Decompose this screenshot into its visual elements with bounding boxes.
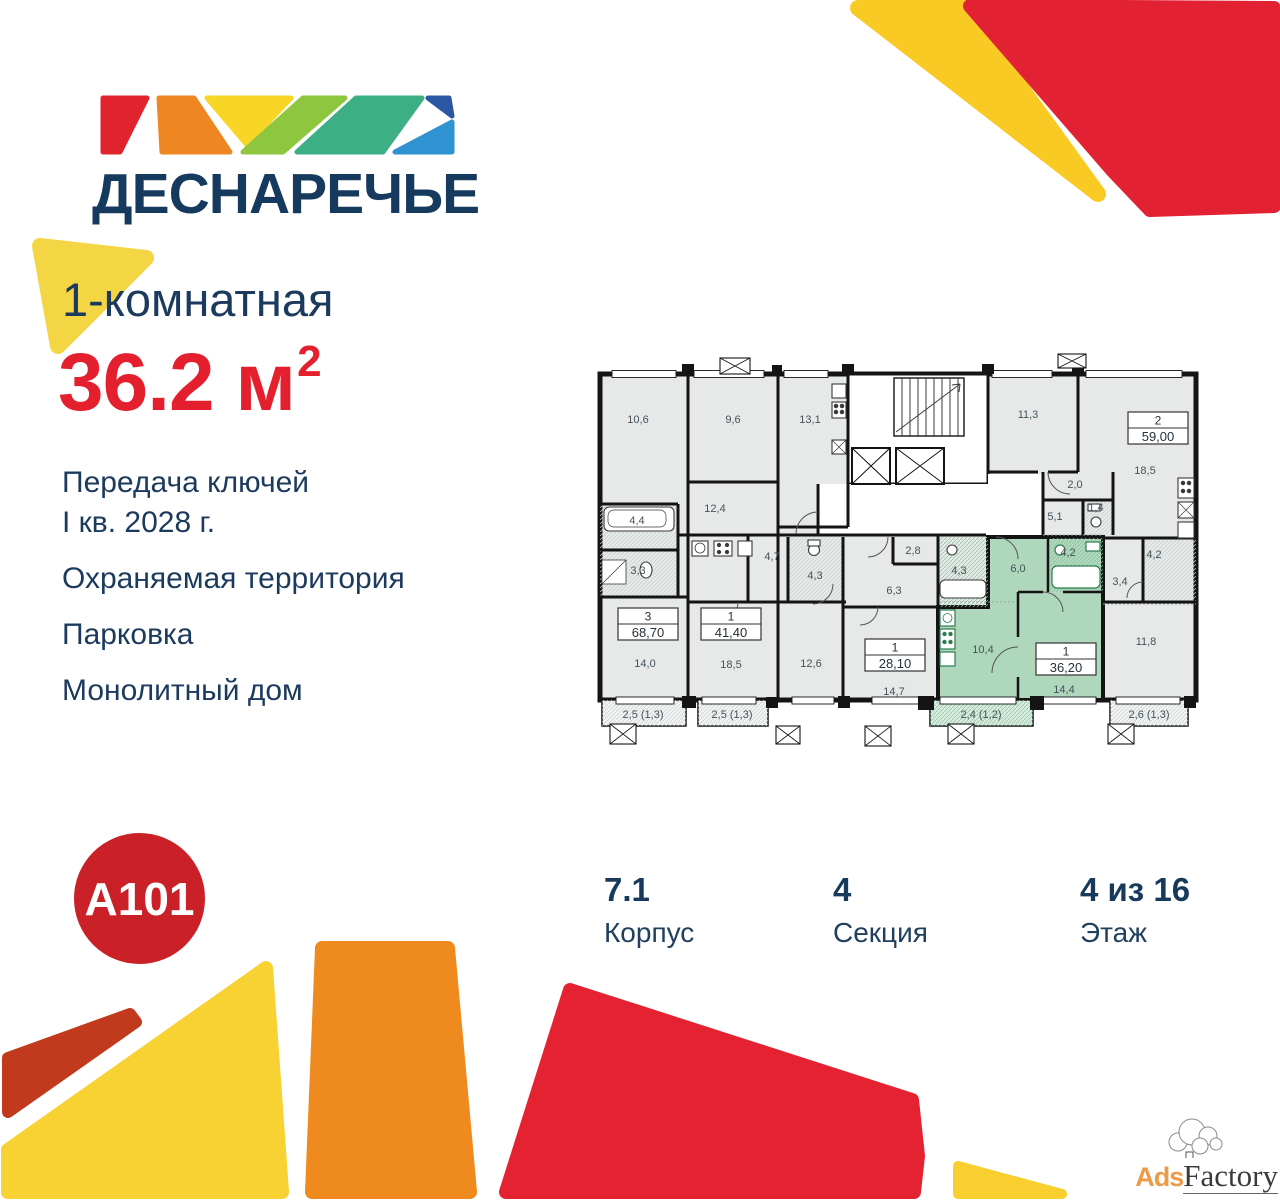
room-area-label: 14,7 bbox=[883, 686, 904, 698]
feature-item: Охраняемая территория bbox=[62, 559, 405, 599]
brand-logo bbox=[95, 95, 457, 157]
room-area-label: 2,5 (1,3) bbox=[712, 709, 753, 721]
smoke-cloud-icon bbox=[1156, 1112, 1226, 1158]
listing-area: 36.2 м2 bbox=[58, 336, 321, 430]
corridor-right bbox=[988, 474, 1043, 535]
feature-item: Монолитный дом bbox=[62, 671, 405, 711]
room-area-label: 12,4 bbox=[704, 503, 725, 515]
apartment-info-box: 128,10 bbox=[865, 639, 925, 671]
room-area-label: 2,4 (1,2) bbox=[961, 709, 1002, 721]
room-area-label: 2,8 bbox=[905, 545, 920, 557]
watermark-factory: Factory bbox=[1183, 1158, 1278, 1194]
room-area-label: 11,8 bbox=[1136, 636, 1157, 648]
room-area-label: 10,4 bbox=[972, 644, 993, 656]
apartment-info-box: 259,00 bbox=[1128, 412, 1188, 444]
room-area-label: 9,6 bbox=[725, 414, 740, 426]
room-area-label: 4,2 bbox=[1146, 549, 1161, 561]
room-area-label: 4,2 bbox=[1060, 547, 1075, 559]
room-area-label: 4,3 bbox=[807, 570, 822, 582]
stat-etazh-value: 4 из 16 bbox=[1080, 871, 1190, 909]
room-area-label: 4,4 bbox=[629, 515, 644, 527]
staircase bbox=[894, 378, 964, 436]
developer-logo-text: А101 bbox=[85, 872, 195, 926]
apartment-rooms-count: 1 bbox=[728, 610, 735, 624]
apartment-total-area: 36,20 bbox=[1050, 660, 1083, 675]
room-area-label: 12,6 bbox=[800, 658, 821, 670]
room-area-label: 18,5 bbox=[720, 659, 741, 671]
room-area-label: 2,5 (1,3) bbox=[623, 709, 664, 721]
area-value: 36.2 bbox=[58, 337, 214, 428]
room-area-label: 6,0 bbox=[1010, 563, 1025, 575]
apartment-rooms-count: 2 bbox=[1155, 414, 1162, 428]
room-area-label: 13,1 bbox=[799, 414, 820, 426]
apartment-total-area: 68,70 bbox=[632, 625, 665, 640]
room-area-label: 14,4 bbox=[1053, 684, 1074, 696]
floor-plan: 10,69,613,111,312,44,43,34,74,32,84,36,3… bbox=[588, 352, 1210, 758]
stat-korpus: 7.1 Корпус bbox=[604, 871, 694, 949]
stat-sekciya-value: 4 bbox=[833, 871, 928, 909]
feature-item: Парковка bbox=[62, 615, 405, 655]
apartment-rooms-count: 1 bbox=[892, 641, 899, 655]
room-area-label: 2,0 bbox=[1067, 479, 1082, 491]
room-area-label: 2,6 (1,3) bbox=[1129, 709, 1170, 721]
room-area-label: 4,3 bbox=[951, 565, 966, 577]
watermark-adsfactory: AdsFactory bbox=[1128, 1112, 1278, 1198]
listing-title: 1-комнатная bbox=[62, 272, 333, 327]
elevators bbox=[852, 448, 944, 484]
feature-item: Передача ключейI кв. 2028 г. bbox=[62, 463, 405, 543]
room-area-label: 4,7 bbox=[764, 551, 779, 563]
room-area-label: 14,0 bbox=[634, 658, 655, 670]
room-area-label: 10,6 bbox=[627, 414, 648, 426]
apartment-total-area: 41,40 bbox=[715, 625, 748, 640]
stat-sekciya: 4 Секция bbox=[833, 871, 928, 949]
stat-korpus-value: 7.1 bbox=[604, 871, 694, 909]
room-area-label: 6,3 bbox=[886, 585, 901, 597]
features-list: Передача ключейI кв. 2028 г.Охраняемая т… bbox=[62, 463, 405, 727]
deco-shape-bottom-orange bbox=[312, 948, 470, 1192]
room-area-label: 3,3 bbox=[630, 565, 645, 577]
brand-name: ДЕСНАРЕЧЬЕ bbox=[92, 161, 479, 227]
apartment-info-box: 136,20 bbox=[1036, 643, 1096, 675]
room-area-label: 1,4 bbox=[1088, 502, 1103, 514]
room-area-label: 5,1 bbox=[1047, 511, 1062, 523]
logo-shape-red bbox=[103, 98, 147, 152]
deco-triangle-bottom-small-yellow bbox=[958, 1166, 1062, 1194]
stat-etazh-label: Этаж bbox=[1080, 917, 1190, 949]
apartment-rooms-count: 3 bbox=[645, 610, 652, 624]
logo-shape-dark-blue bbox=[428, 98, 452, 116]
apartment-rooms-count: 1 bbox=[1063, 645, 1070, 659]
stat-korpus-label: Корпус bbox=[604, 917, 694, 949]
apartment-info-box: 141,40 bbox=[701, 608, 761, 640]
deco-shape-bottom-red bbox=[506, 990, 918, 1192]
apartment-total-area: 59,00 bbox=[1142, 429, 1175, 444]
room-area-label: 3,4 bbox=[1112, 576, 1127, 588]
apartment-total-area: 28,10 bbox=[879, 656, 912, 671]
listing-poster: { "brand": {"name": "ДЕСНАРЕЧЬЕ", "devel… bbox=[0, 0, 1280, 1200]
area-superscript: 2 bbox=[297, 337, 320, 386]
watermark-ads: Ads bbox=[1135, 1162, 1183, 1192]
room-area-label: 11,3 bbox=[1018, 409, 1039, 421]
apartment-info-box: 368,70 bbox=[618, 608, 678, 640]
room-area-label: 18,5 bbox=[1134, 465, 1155, 477]
developer-logo-a101: А101 bbox=[74, 833, 205, 964]
area-unit: м bbox=[235, 337, 295, 428]
stat-etazh: 4 из 16 Этаж bbox=[1080, 871, 1190, 949]
stat-sekciya-label: Секция bbox=[833, 917, 928, 949]
